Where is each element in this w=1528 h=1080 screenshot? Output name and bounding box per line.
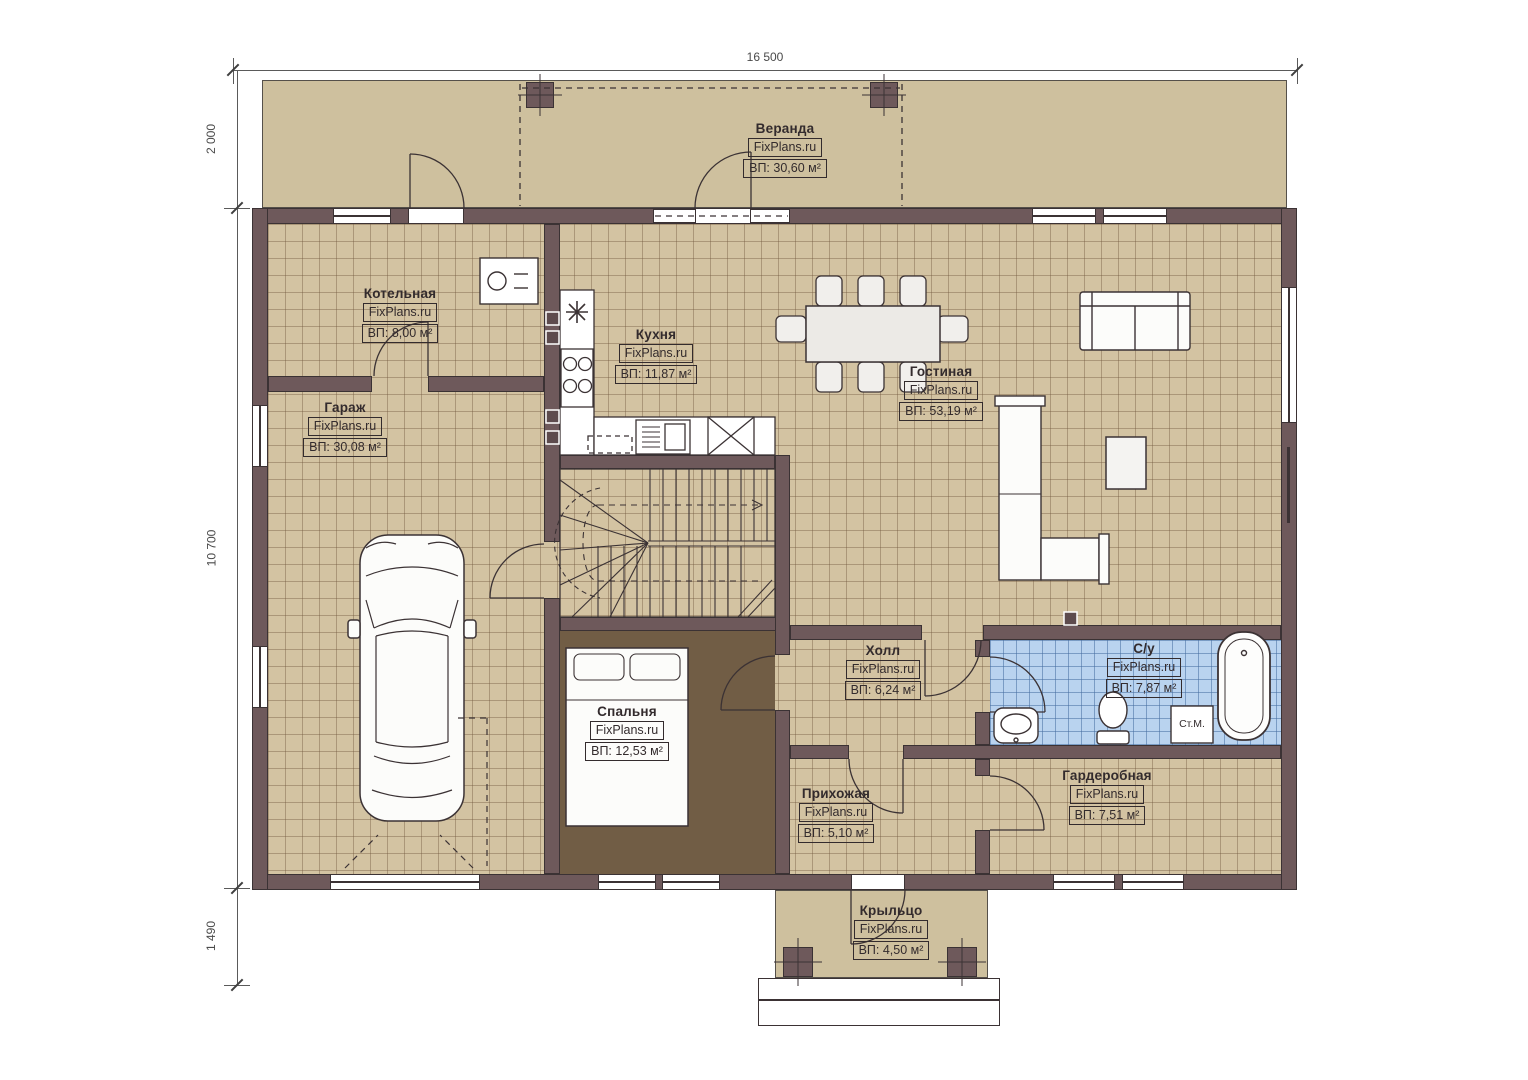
wall-boiler-right	[428, 376, 544, 392]
wall-hall-bath-bottom	[975, 712, 990, 745]
wall-garage-lower	[544, 598, 560, 874]
room-label-gostinaya: Гостиная FixPlans.ru ВП: 53,19 м²	[893, 364, 989, 421]
brand-watermark: FixPlans.ru	[904, 381, 979, 400]
room-label-garderobnaya: Гардеробная FixPlans.ru ВП: 7,51 м²	[1058, 768, 1156, 825]
window-living-top-2	[1103, 208, 1167, 224]
room-area: ВП: 30,60 м²	[743, 159, 827, 178]
brand-watermark: FixPlans.ru	[308, 417, 383, 436]
window-boiler	[333, 208, 391, 224]
wall-outer-left	[252, 208, 268, 890]
room-area: ВП: 11,87 м²	[615, 365, 698, 384]
room-name: Крыльцо	[860, 903, 923, 918]
room-label-holl: Холл FixPlans.ru ВП: 6,24 м²	[840, 643, 926, 700]
floor-plan: 16 500 2 000 10 700 1 490	[0, 0, 1528, 1080]
veranda-column-1	[526, 82, 554, 108]
window-garage-left-1	[252, 405, 268, 467]
brand-watermark: FixPlans.ru	[846, 660, 921, 679]
room-area: ВП: 7,51 м²	[1069, 806, 1146, 825]
room-area: ВП: 12,53 м²	[585, 742, 669, 761]
wall-entry-wardrobe-bottom	[975, 830, 990, 874]
room-area: ВП: 53,19 м²	[899, 402, 983, 421]
room-name: Гараж	[324, 400, 365, 415]
window-wardrobe-1	[1053, 874, 1115, 890]
porch-column-2	[947, 947, 977, 977]
room-name: Гостиная	[910, 364, 973, 379]
wall-hall-entry-right	[903, 745, 1281, 759]
room-name: Гардеробная	[1062, 768, 1152, 783]
porch-step-2	[758, 1000, 1000, 1026]
room-area: ВП: 8,00 м²	[362, 324, 439, 343]
room-area: ВП: 5,10 м²	[798, 824, 875, 843]
room-name: Прихожая	[802, 786, 870, 801]
brand-watermark: FixPlans.ru	[1070, 785, 1145, 804]
room-label-garazh: Гараж FixPlans.ru ВП: 30,08 м²	[298, 400, 392, 457]
room-name: Котельная	[364, 286, 436, 301]
room-name: Холл	[866, 643, 901, 658]
wall-living-hall-right	[983, 625, 1281, 640]
right-wall-feature	[1287, 447, 1290, 523]
wall-stairs-right-lower	[775, 710, 790, 874]
dim-veranda-depth: 2 000	[196, 97, 226, 181]
veranda-door-1-opening	[408, 208, 464, 224]
brand-watermark: FixPlans.ru	[854, 920, 929, 939]
window-living-right	[1281, 287, 1297, 423]
wall-kitchen-stairs	[560, 455, 775, 469]
room-label-kuhnya: Кухня FixPlans.ru ВП: 11,87 м²	[608, 327, 704, 384]
washing-machine-label: Ст.М.	[1171, 718, 1213, 730]
wall-garage-upper	[544, 224, 560, 542]
brand-watermark: FixPlans.ru	[590, 721, 665, 740]
room-name: Кухня	[636, 327, 676, 342]
porch-step-1	[758, 978, 1000, 1000]
wall-stairs-bedroom	[560, 617, 790, 631]
window-bedroom-2	[662, 874, 720, 890]
dim-width-total: 16 500	[233, 50, 1297, 64]
wall-stairs-right-upper	[775, 455, 790, 655]
window-garage-left-2	[252, 646, 268, 708]
room-area: ВП: 30,08 м²	[303, 438, 387, 457]
room-label-prihozhaya: Прихожая FixPlans.ru ВП: 5,10 м²	[790, 786, 882, 843]
room-label-kotelnaya: Котельная FixPlans.ru ВП: 8,00 м²	[352, 286, 448, 343]
room-name: Веранда	[756, 121, 815, 136]
entrance-door-opening	[851, 874, 905, 890]
veranda-door-2-opening	[695, 208, 751, 224]
room-label-veranda: Веранда FixPlans.ru ВП: 30,60 м²	[730, 121, 840, 178]
room-area: ВП: 7,87 м²	[1106, 679, 1183, 698]
garage-gate	[330, 874, 480, 890]
brand-watermark: FixPlans.ru	[748, 138, 823, 157]
wall-hall-bath-top	[975, 640, 990, 657]
room-label-kryltso: Крыльцо FixPlans.ru ВП: 4,50 м²	[845, 903, 937, 960]
dim-porch-depth: 1 490	[196, 894, 226, 978]
window-living-top-1	[1032, 208, 1096, 224]
dim-house-depth: 10 700	[196, 506, 226, 590]
room-label-sanuzel: С/у FixPlans.ru ВП: 7,87 м²	[1100, 641, 1188, 698]
room-label-spalnya: Спальня FixPlans.ru ВП: 12,53 м²	[582, 704, 672, 761]
brand-watermark: FixPlans.ru	[1107, 658, 1182, 677]
brand-watermark: FixPlans.ru	[799, 803, 874, 822]
wall-boiler-left	[268, 376, 372, 392]
window-bedroom-1	[598, 874, 656, 890]
veranda-column-2	[870, 82, 898, 108]
window-wardrobe-2	[1122, 874, 1184, 890]
room-area: ВП: 6,24 м²	[845, 681, 922, 700]
room-name: С/у	[1133, 641, 1155, 656]
room-area: ВП: 4,50 м²	[853, 941, 930, 960]
dim-line-top	[233, 70, 1297, 71]
brand-watermark: FixPlans.ru	[619, 344, 694, 363]
wall-living-hall-left	[790, 625, 922, 640]
brand-watermark: FixPlans.ru	[363, 303, 438, 322]
wall-entry-wardrobe-top	[975, 759, 990, 776]
porch-column-1	[783, 947, 813, 977]
room-name: Спальня	[597, 704, 657, 719]
wall-hall-entry-left	[790, 745, 849, 759]
